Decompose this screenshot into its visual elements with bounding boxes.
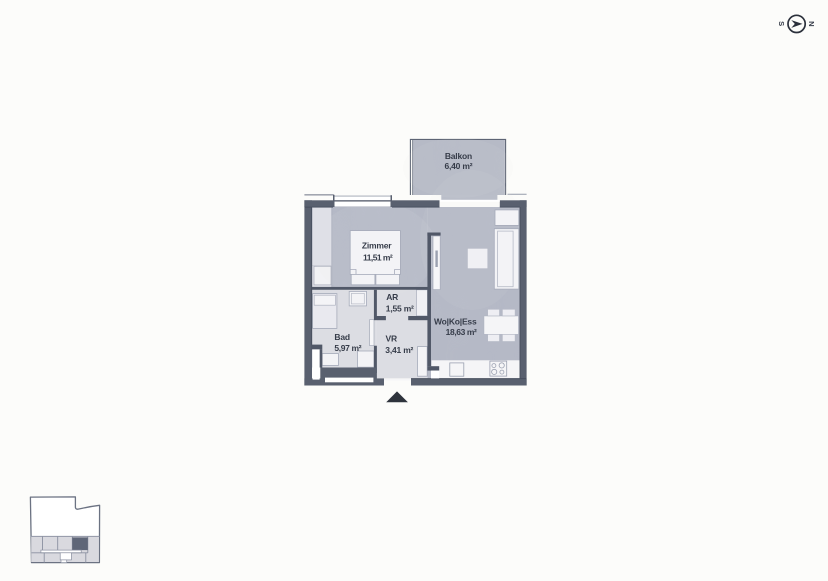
svg-text:3,41 m²: 3,41 m²: [385, 345, 413, 355]
svg-text:6,40 m²: 6,40 m²: [444, 161, 472, 171]
svg-text:AR: AR: [386, 292, 398, 302]
svg-text:Wo|Ko|Ess: Wo|Ko|Ess: [434, 316, 477, 326]
svg-text:N: N: [807, 21, 816, 26]
svg-text:Bad: Bad: [334, 332, 349, 342]
svg-text:S: S: [777, 21, 786, 26]
svg-text:11,51 m²: 11,51 m²: [363, 253, 393, 263]
svg-text:VR: VR: [386, 333, 397, 343]
svg-text:5,97 m²: 5,97 m²: [334, 343, 361, 353]
svg-text:Balkon: Balkon: [445, 151, 472, 161]
svg-text:1,55 m²: 1,55 m²: [386, 304, 414, 314]
svg-text:Zimmer: Zimmer: [362, 241, 392, 251]
svg-text:18,63 m²: 18,63 m²: [446, 327, 477, 337]
